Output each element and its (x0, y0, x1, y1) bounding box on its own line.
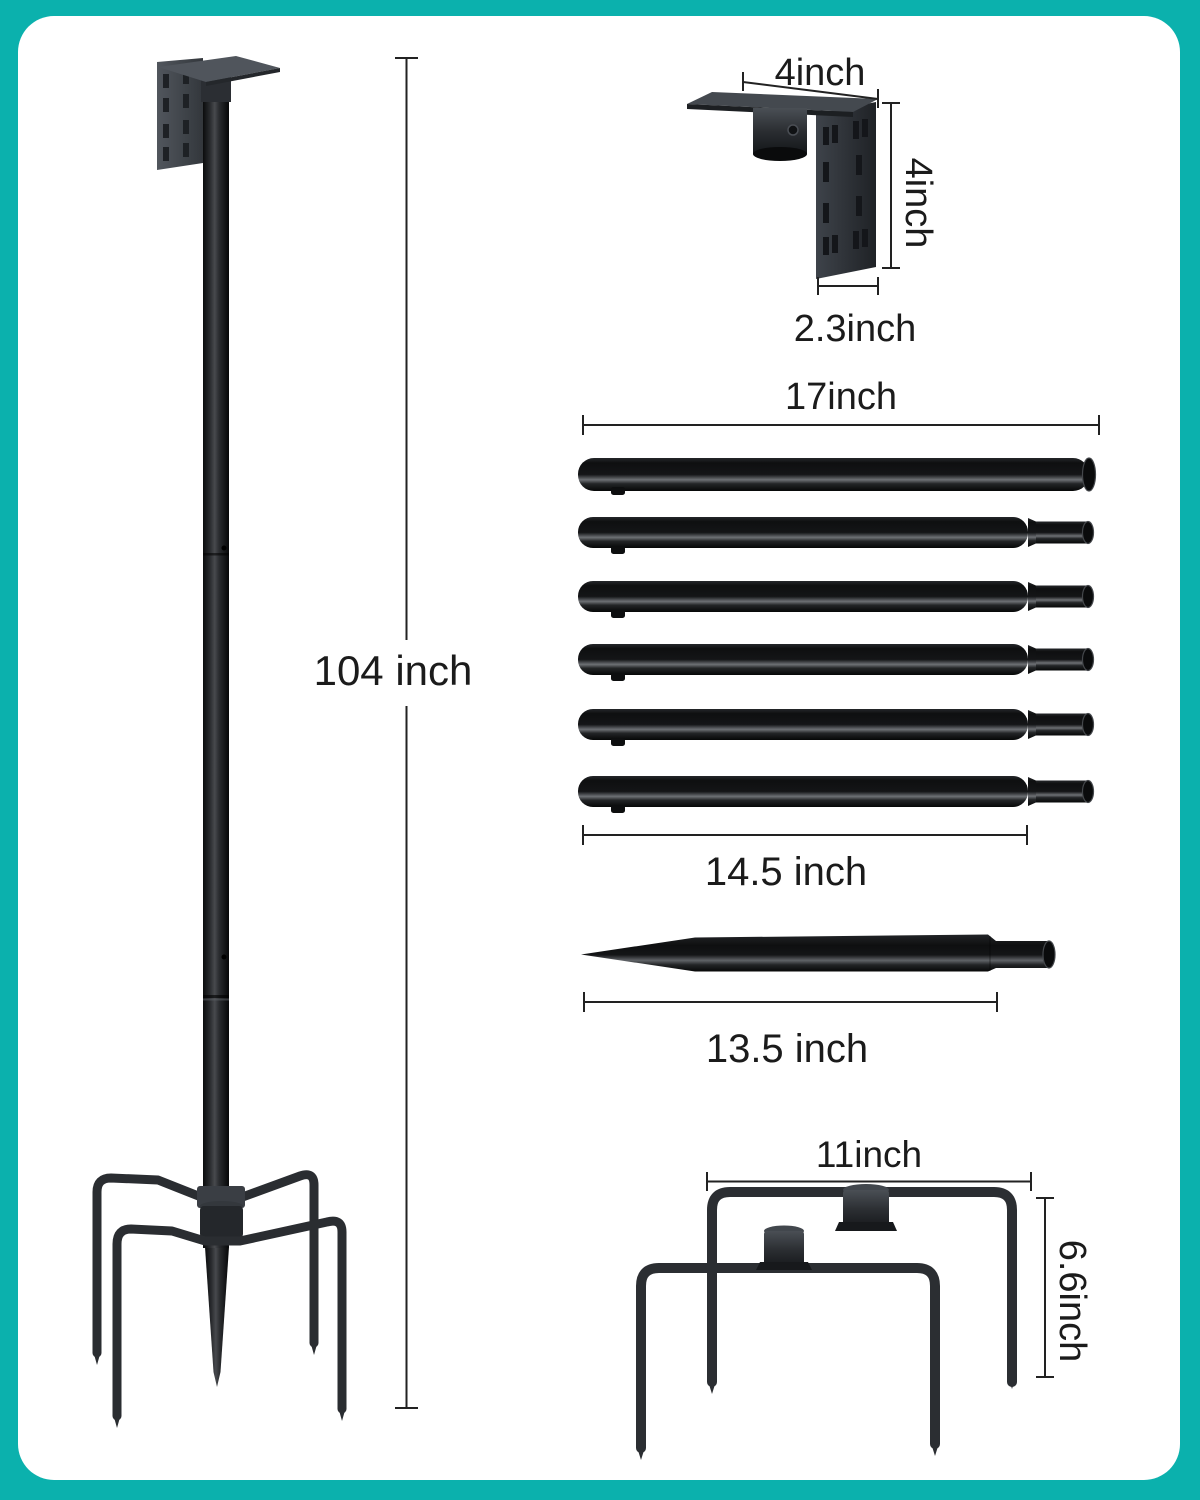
prong-tip (707, 1378, 717, 1394)
dim-line-pole-height (395, 58, 418, 1408)
spike-body (581, 935, 1049, 972)
prong-tip (113, 1412, 122, 1428)
dim-label-tube-length: 17inch (741, 378, 941, 416)
dim-line-spike-length (584, 992, 997, 1012)
pole-joint-highlight (203, 999, 229, 1001)
ground-spike-figure (581, 935, 1055, 972)
front-collar-skirt (756, 1262, 812, 1270)
dim-label-base-width: 11inch (769, 1136, 969, 1173)
prong-tip (930, 1440, 940, 1456)
dim-label-bracket-depth: 2.3inch (755, 310, 955, 348)
five-prong-base-figure (636, 1184, 1017, 1460)
pole-joint (203, 995, 229, 998)
spring-button (222, 546, 227, 551)
pole-tube (578, 644, 1094, 681)
base-front-prongs (641, 1268, 935, 1448)
dim-label-pole-height: 104 inch (293, 650, 493, 692)
pole-tube (578, 581, 1094, 618)
prong-tip (93, 1349, 102, 1365)
dim-line-bracket-depth (818, 277, 878, 295)
dim-label-spike-length: 13.5 inch (662, 1029, 912, 1069)
socket-bolt (788, 125, 798, 135)
pole-tube (578, 458, 1096, 495)
assembled-pole-figure (93, 56, 347, 1428)
pole-joint (203, 553, 229, 556)
prong-tip (636, 1444, 646, 1460)
dim-label-tube-body-length: 14.5 inch (661, 852, 911, 892)
dim-label-bracket-width: 4inch (720, 54, 920, 92)
pole-tubes-figure (578, 458, 1096, 813)
pole-tube (578, 517, 1094, 554)
pole-shaft (203, 90, 229, 1248)
spring-button (222, 955, 227, 960)
dim-line-tube-body-length (583, 825, 1027, 845)
spike-end-cap (1043, 941, 1055, 968)
center-spike (205, 1247, 229, 1387)
product-diagram-art (0, 0, 1200, 1500)
mounting-bracket-figure (687, 92, 878, 279)
socket-bottom (753, 147, 807, 161)
dim-line-tube-length (583, 415, 1099, 435)
prong-tip (338, 1405, 347, 1421)
dim-label-base-height: 6.6inch (1053, 1201, 1091, 1401)
back-collar-skirt (835, 1222, 897, 1231)
base-front-collar (200, 1206, 243, 1238)
product-dimension-diagram: 104 inch 4inch 4inch 2.3inch 17inch 14.5… (0, 0, 1200, 1500)
prong-tip (310, 1339, 319, 1355)
pole-tube (578, 709, 1094, 746)
base-front-prongs (117, 1221, 342, 1416)
pole-tube (578, 776, 1094, 813)
dim-label-bracket-height: 4inch (899, 103, 937, 303)
